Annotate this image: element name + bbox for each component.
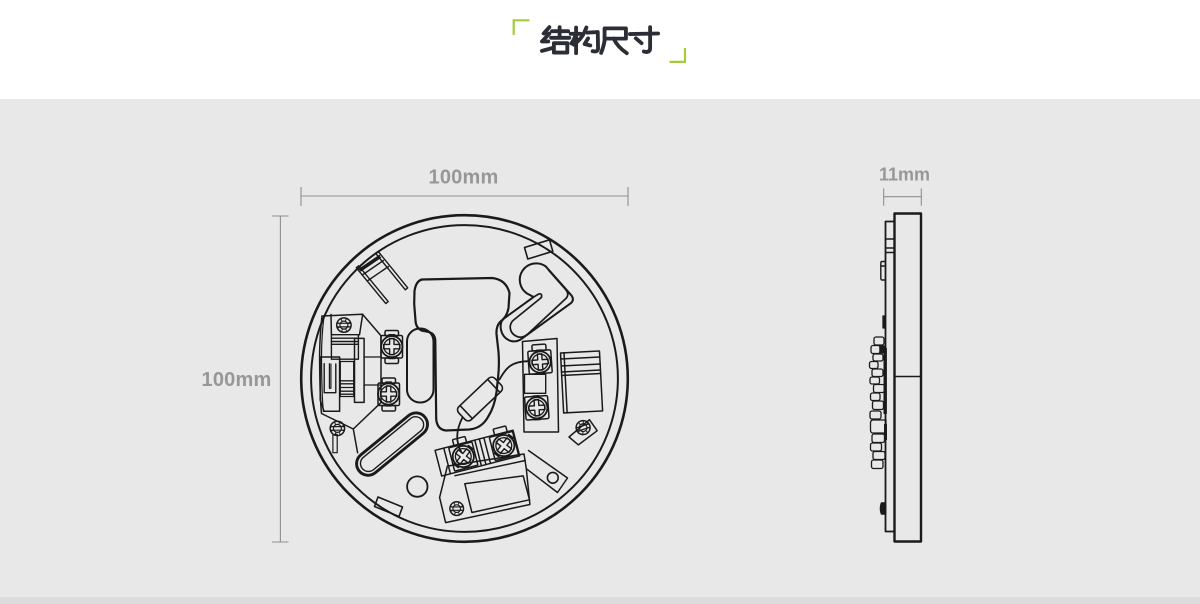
svg-text:100mm: 100mm (202, 369, 272, 391)
svg-text:11mm: 11mm (879, 165, 930, 185)
svg-text:100mm: 100mm (429, 167, 499, 189)
